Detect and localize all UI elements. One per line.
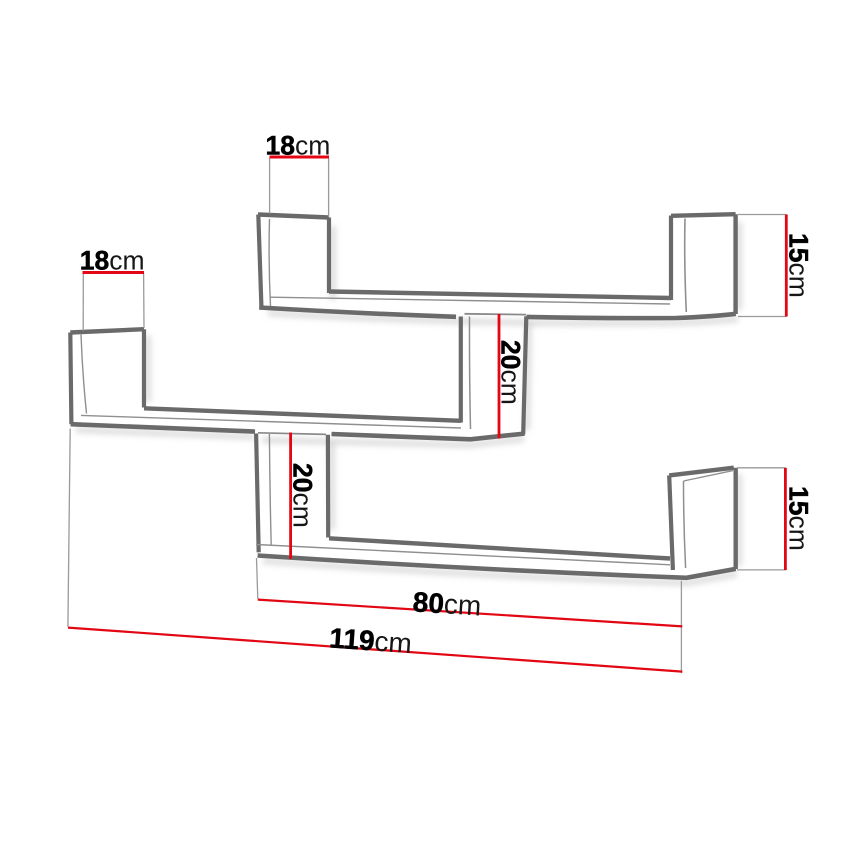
svg-text:20cm: 20cm [496,340,526,405]
svg-text:80cm: 80cm [412,586,482,621]
svg-text:20cm: 20cm [288,463,318,528]
svg-text:18cm: 18cm [266,131,331,161]
svg-text:15cm: 15cm [784,486,814,551]
svg-text:15cm: 15cm [784,233,814,298]
svg-text:18cm: 18cm [80,246,145,276]
svg-text:119cm: 119cm [328,622,413,659]
